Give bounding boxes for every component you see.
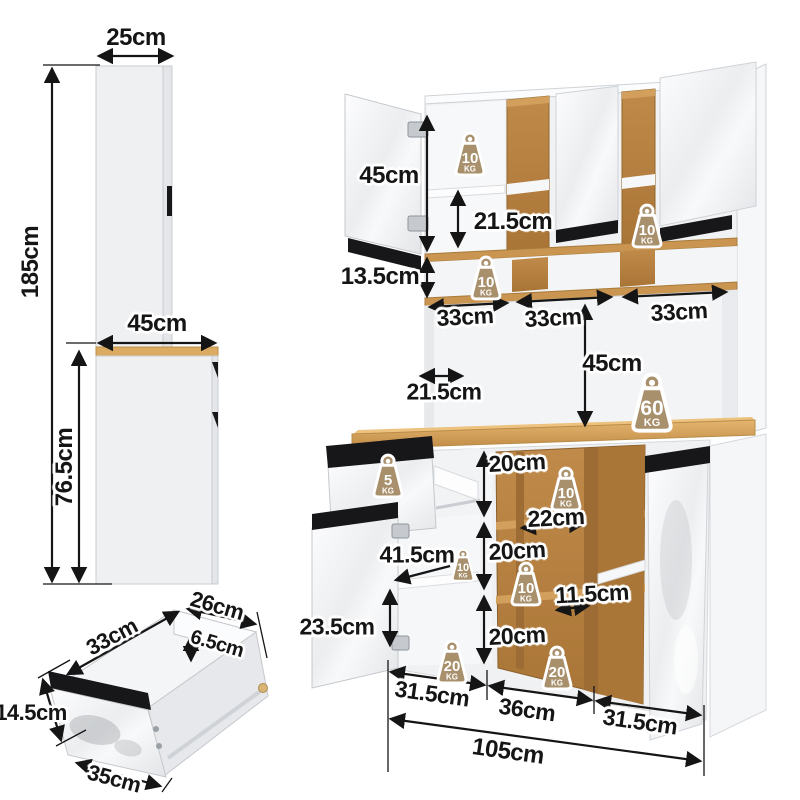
dim-upper-section-width-3: 33cm — [650, 299, 708, 325]
dim-upper-door-height: 45cm — [359, 164, 418, 188]
dim-hutch-shelf-depth: 21.5cm — [406, 381, 481, 404]
weight-unit: KG — [464, 165, 476, 173]
side-handle — [167, 186, 172, 216]
weight-badge-door-shelf: 10 KG — [448, 549, 478, 584]
dim-side-total-height: 185cm — [19, 226, 43, 298]
hinge-icon — [408, 122, 428, 137]
dim-side-counter-depth: 45cm — [127, 312, 186, 336]
weight-value: 10 — [457, 563, 469, 574]
dim-door-shelf-height: 23.5cm — [299, 616, 374, 639]
weight-badge-cubby-top: 10 KG — [546, 467, 586, 514]
dim-cubby-gap-2: 20cm — [488, 538, 546, 564]
dim-upper-row-height: 13.5cm — [341, 265, 419, 289]
weight-badge-upper-row: 10 KG — [466, 256, 506, 303]
weight-unit: KG — [644, 418, 661, 429]
dim-side-top-depth: 25cm — [106, 26, 165, 50]
weight-unit: KG — [641, 237, 653, 245]
weight-badge-countertop: 60 KG — [625, 373, 679, 436]
dim-cubby-gap-1: 20cm — [488, 450, 546, 476]
weight-badge-upper-left: 10 KG — [450, 132, 490, 179]
weight-badge-base-right: 20 KG — [537, 646, 577, 693]
dim-upper-shelf-gap: 21.5cm — [474, 210, 552, 234]
dim-side-shelf-width: 11.5cm — [555, 581, 630, 608]
weight-badge-drawer: 5 KG — [368, 454, 408, 501]
weight-unit: KG — [480, 289, 492, 297]
weight-value: 60 — [640, 398, 663, 419]
weight-badge-base-left: 20 KG — [432, 640, 472, 687]
dimension-diagram: 25cm 185cm 45cm 76.5cm 33cm 26cm 6.5cm 1… — [0, 0, 800, 800]
weight-unit: KG — [446, 673, 458, 681]
dim-door-interior-depth: 41.5cm — [379, 544, 454, 567]
dim-drawer-front-height: 14.5cm — [0, 702, 67, 724]
weight-unit: KG — [459, 574, 468, 580]
weight-badge-upper-right: 10 KG — [627, 204, 667, 251]
hinge-icon — [408, 216, 428, 231]
hinge-icon — [392, 636, 409, 650]
weight-unit: KG — [520, 595, 532, 603]
hinge-icon — [392, 524, 409, 538]
drawer-3d-graphic — [48, 610, 268, 777]
weight-unit: KG — [551, 679, 563, 687]
dim-upper-section-width-1: 33cm — [436, 304, 494, 330]
dim-upper-section-width-2: 33cm — [524, 305, 582, 331]
upper-right-door — [660, 62, 756, 226]
weight-unit: KG — [560, 500, 572, 508]
weight-unit: KG — [382, 487, 394, 495]
dim-side-base-height: 76.5cm — [53, 428, 77, 506]
weight-badge-cubby-middle: 10 KG — [506, 562, 546, 609]
